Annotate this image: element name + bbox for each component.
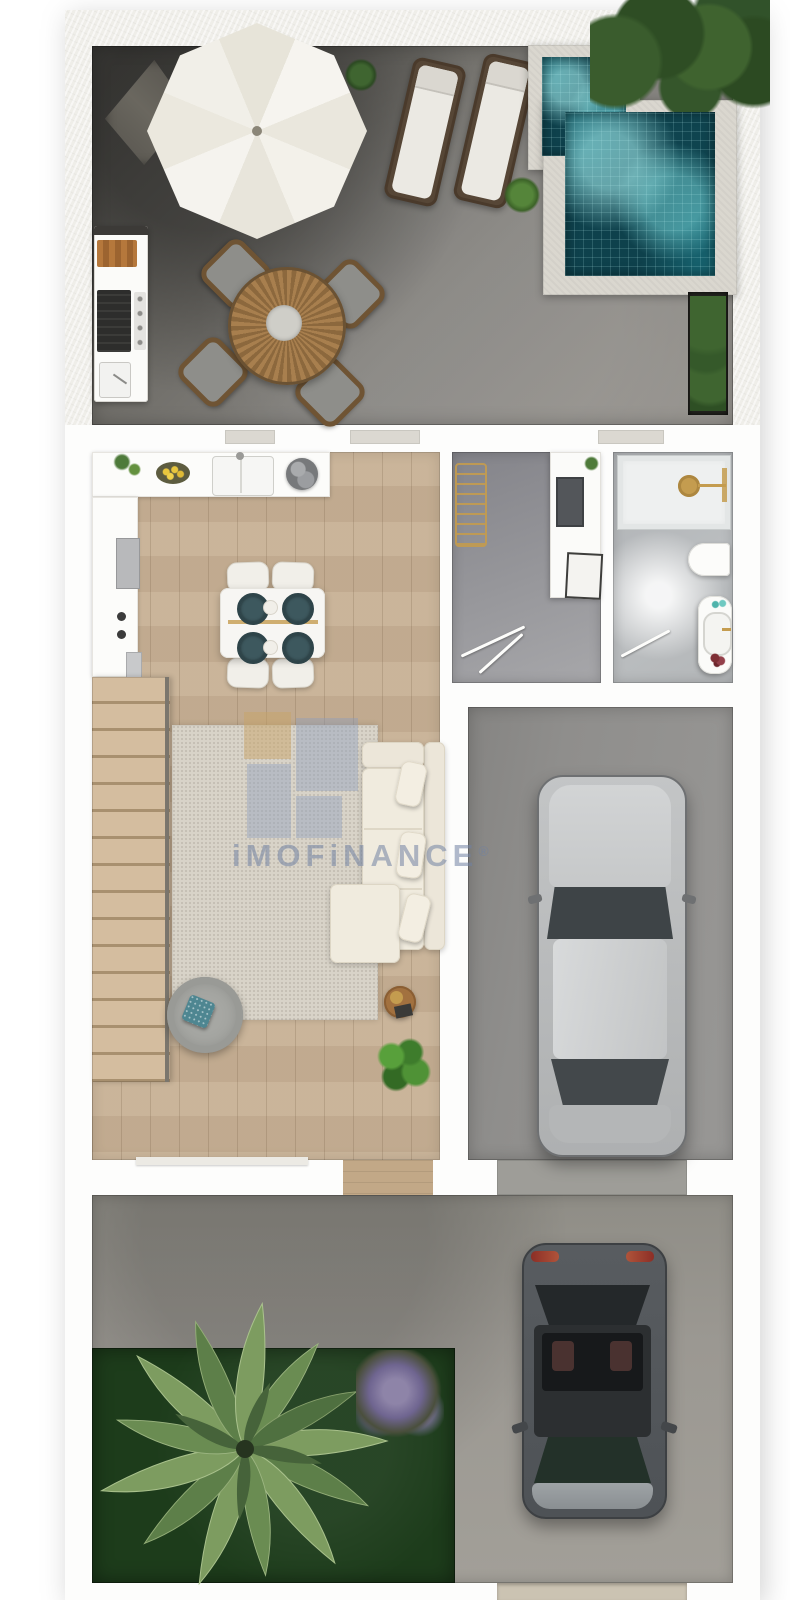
floor-plan-render: iMOFiNANCE® <box>0 0 790 1600</box>
potted-plant-icon <box>374 1036 432 1094</box>
parasol-hub <box>252 126 262 136</box>
staircase <box>92 677 170 1082</box>
entry-threshold <box>343 1160 433 1195</box>
car-taillight <box>531 1251 559 1262</box>
kitchen-sink <box>212 456 274 496</box>
car-rear-window <box>551 1059 669 1105</box>
outdoor-sink <box>99 362 131 398</box>
small-plate-icon <box>263 640 278 655</box>
utility-sink <box>556 477 584 527</box>
shower-valve <box>722 468 727 502</box>
hedge-plants <box>590 0 770 112</box>
plate-icon <box>282 593 314 625</box>
car-rear-window <box>535 1285 650 1325</box>
garage-door-opening <box>497 1160 687 1195</box>
bbq-hood <box>94 226 148 235</box>
cosmetic-bottles-icon <box>710 599 728 610</box>
watermark-text: iMOFiNANCE® <box>232 838 577 880</box>
toilet <box>688 543 730 576</box>
bbq-knobs <box>134 292 146 350</box>
shower-head-icon <box>678 475 700 497</box>
registered-mark: ® <box>478 843 488 859</box>
watermark-brand: iMOFiNANCE <box>232 838 478 873</box>
car-seat <box>610 1341 632 1371</box>
basin-faucet <box>722 628 731 631</box>
dishwasher <box>126 652 142 680</box>
planter-plants <box>690 296 726 411</box>
car-seat <box>552 1341 574 1371</box>
large-pool-water <box>565 112 715 276</box>
shrub-icon <box>503 176 541 214</box>
fridge <box>116 538 140 589</box>
car-trunk <box>549 1105 671 1143</box>
car-roof <box>553 939 667 1059</box>
watermark-logo-square <box>244 712 291 759</box>
watermark-logo-square <box>247 764 291 838</box>
watermark-logo-square <box>296 718 358 791</box>
cutting-boards <box>97 240 137 267</box>
kitchen-plant-icon <box>127 462 142 477</box>
oven-knob <box>117 630 126 639</box>
car-hood <box>532 1483 653 1509</box>
walk-in-shower <box>617 455 731 530</box>
small-plate-icon <box>263 600 278 615</box>
terrace-door-mark <box>225 430 275 444</box>
kitchen-faucet <box>236 452 244 460</box>
terrace-door-mark <box>350 430 420 444</box>
car-taillight <box>626 1251 654 1262</box>
oven-knob <box>117 612 126 621</box>
cooktop-icon <box>286 458 318 490</box>
flowers-icon <box>707 650 727 668</box>
driveway-car <box>522 1243 667 1519</box>
shrub-icon <box>344 58 378 92</box>
fruit-bowl-icon <box>156 462 190 484</box>
palm-tree-icon <box>88 1292 403 1600</box>
driveway-gate-opening <box>497 1583 687 1600</box>
window-sill <box>136 1157 308 1165</box>
drying-rack-icon <box>455 463 487 547</box>
utility-plant-icon <box>583 455 600 472</box>
utility-board <box>565 552 603 600</box>
garage-car <box>537 775 687 1157</box>
watermark-logo-square <box>296 796 342 838</box>
sofa-seam <box>364 828 422 830</box>
gold-tray-icon <box>390 991 403 1004</box>
plate-icon <box>282 632 314 664</box>
car-windshield <box>534 1437 651 1483</box>
lavender-bush-icon <box>356 1350 444 1442</box>
bbq-grill <box>97 290 131 352</box>
car-windshield <box>547 887 673 939</box>
terrace-door-mark <box>598 430 664 444</box>
sofa-chaise <box>330 884 400 963</box>
table-center <box>266 305 302 341</box>
